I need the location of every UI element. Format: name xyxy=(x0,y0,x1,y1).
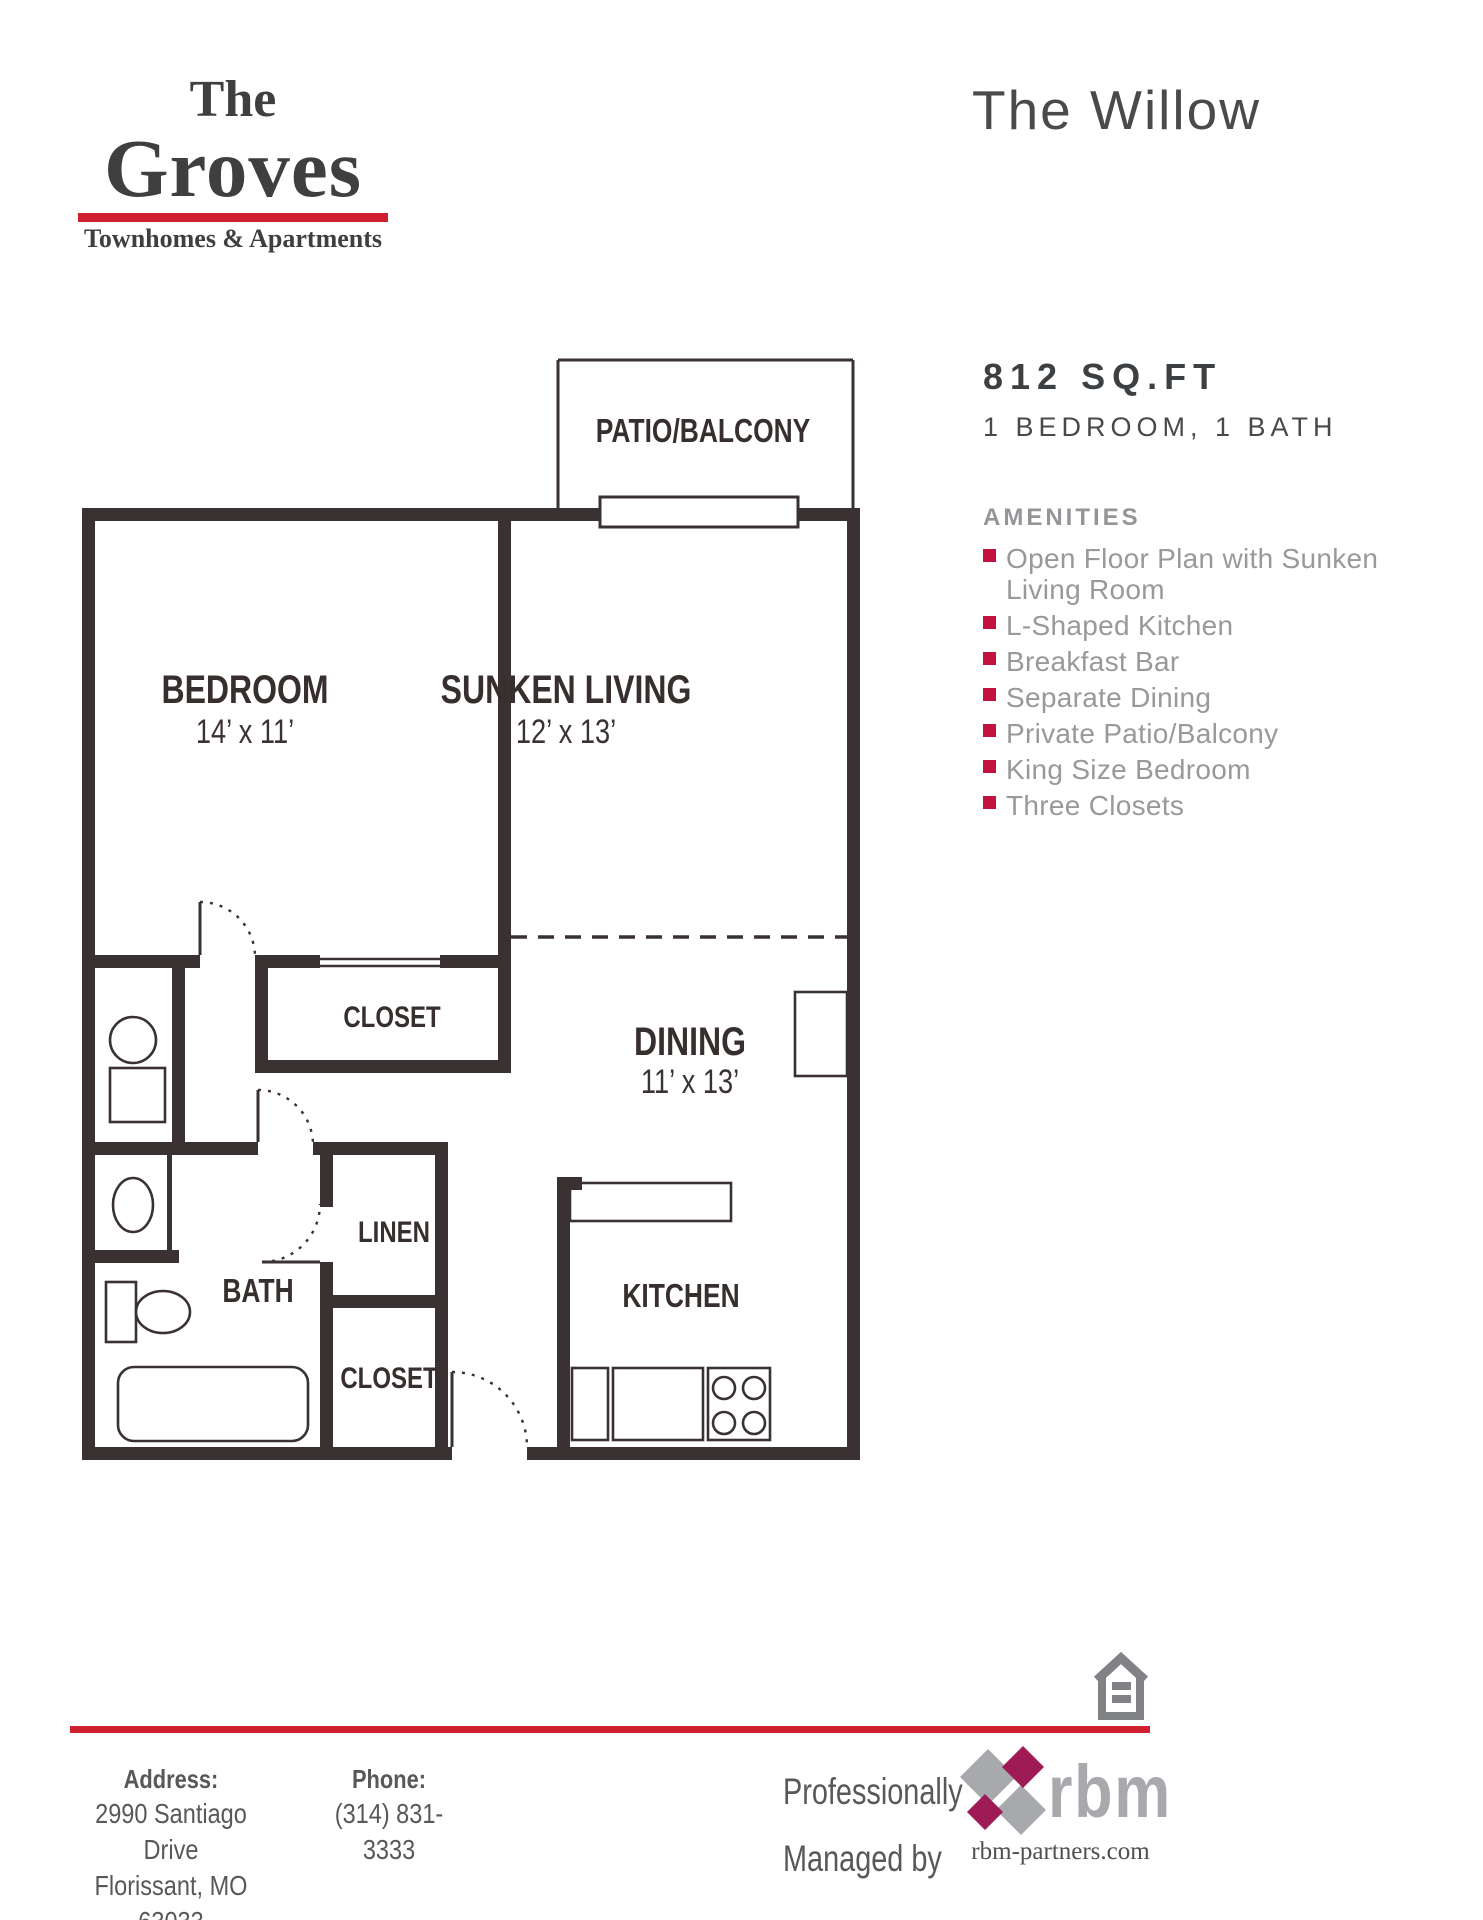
wall-closet-bottom xyxy=(255,1060,511,1073)
room-label-entry-closet: CLOSET xyxy=(340,1360,438,1394)
rbm-wordmark: rbm xyxy=(1048,1752,1172,1832)
room-label-bath: BATH xyxy=(222,1273,293,1309)
room-dims-dining: 11’ x 13’ xyxy=(641,1062,739,1101)
wall-linen-closet-divider xyxy=(333,1295,448,1308)
kitchen-sink-counter xyxy=(613,1368,703,1440)
managed-by-text: Professionally Managed by xyxy=(783,1758,963,1892)
refrigerator xyxy=(795,992,847,1076)
stove-burner xyxy=(743,1377,765,1399)
dishwasher xyxy=(572,1368,608,1440)
wall-bedroom-living-divider xyxy=(498,508,511,1073)
rbm-logo-mark xyxy=(960,1746,1046,1835)
wall-vanity-bottom xyxy=(95,1250,179,1263)
wall-closet-left xyxy=(255,955,268,1073)
rbm-diamond-gray xyxy=(996,1785,1046,1835)
room-label-patio: PATIO/BALCONY xyxy=(596,413,811,449)
wall-top-left xyxy=(82,508,600,521)
address-line2: Florissant, MO 63033 xyxy=(78,1868,264,1920)
stove-burner xyxy=(743,1412,765,1434)
washer xyxy=(110,1017,156,1063)
walls xyxy=(82,508,860,1460)
room-label-kitchen: KITCHEN xyxy=(622,1278,739,1314)
wall-right xyxy=(847,508,860,1460)
wall-closet-column-right xyxy=(435,1147,448,1447)
phone-block: Phone: (314) 831-3333 xyxy=(314,1762,464,1868)
bedroom-door-arc xyxy=(200,902,255,955)
footer-rule xyxy=(70,1726,1150,1733)
wall-bottom-right xyxy=(527,1447,860,1460)
wall-vanity-right xyxy=(167,1155,172,1250)
wall-linen-top xyxy=(333,1142,448,1155)
wall-left xyxy=(82,508,95,1460)
linen-door-arc xyxy=(262,1204,320,1262)
room-label-hall-closet: CLOSET xyxy=(343,999,441,1033)
floor-plan: PATIO/BALCONY BEDROOM 14’ x 11’ SUNKEN L… xyxy=(0,0,1483,1920)
wall-kitchen-left xyxy=(557,1177,570,1447)
dryer xyxy=(110,1068,165,1122)
entry-door-arc xyxy=(452,1372,527,1447)
rbm-diamond-gray xyxy=(960,1749,1016,1805)
rbm-website: rbm-partners.com xyxy=(968,1838,1153,1866)
window xyxy=(600,497,798,527)
address-label: Address: xyxy=(78,1762,264,1796)
rbm-diamond-magenta xyxy=(967,1794,1003,1830)
room-dims-bedroom: 14’ x 11’ xyxy=(196,712,294,751)
room-label-dining: DINING xyxy=(634,1019,746,1064)
breakfast-bar xyxy=(570,1183,731,1221)
bathroom-sink xyxy=(113,1178,153,1232)
stove-burner xyxy=(713,1412,735,1434)
address-line1: 2990 Santiago Drive xyxy=(78,1796,264,1868)
room-label-living: SUNKEN LIVING xyxy=(441,667,692,712)
wall-linen-left-lower xyxy=(320,1262,333,1447)
wall-closet-top-right xyxy=(440,955,498,968)
address-block: Address: 2990 Santiago Drive Florissant,… xyxy=(78,1762,264,1920)
wall-laundry-bottom xyxy=(95,1142,185,1155)
wall-bath-top-left xyxy=(185,1142,258,1155)
wall-bottom-left xyxy=(82,1447,452,1460)
bath-door-arc xyxy=(258,1090,313,1145)
room-dims-living: 12’ x 13’ xyxy=(516,712,616,751)
flyer-page: The Groves Townhomes & Apartments The Wi… xyxy=(0,0,1483,1920)
equal-housing-icon xyxy=(1097,1658,1145,1716)
room-label-linen: LINEN xyxy=(358,1214,430,1248)
toilet-tank xyxy=(106,1282,136,1342)
wall-linen-left-upper xyxy=(320,1147,333,1207)
stove-burner xyxy=(713,1377,735,1399)
bathtub xyxy=(118,1367,308,1441)
room-label-bedroom: BEDROOM xyxy=(161,667,328,712)
toilet-bowl xyxy=(136,1291,190,1333)
phone-number: (314) 831-3333 xyxy=(314,1796,464,1868)
phone-label: Phone: xyxy=(314,1762,464,1796)
wall-laundry-right xyxy=(172,955,185,1155)
